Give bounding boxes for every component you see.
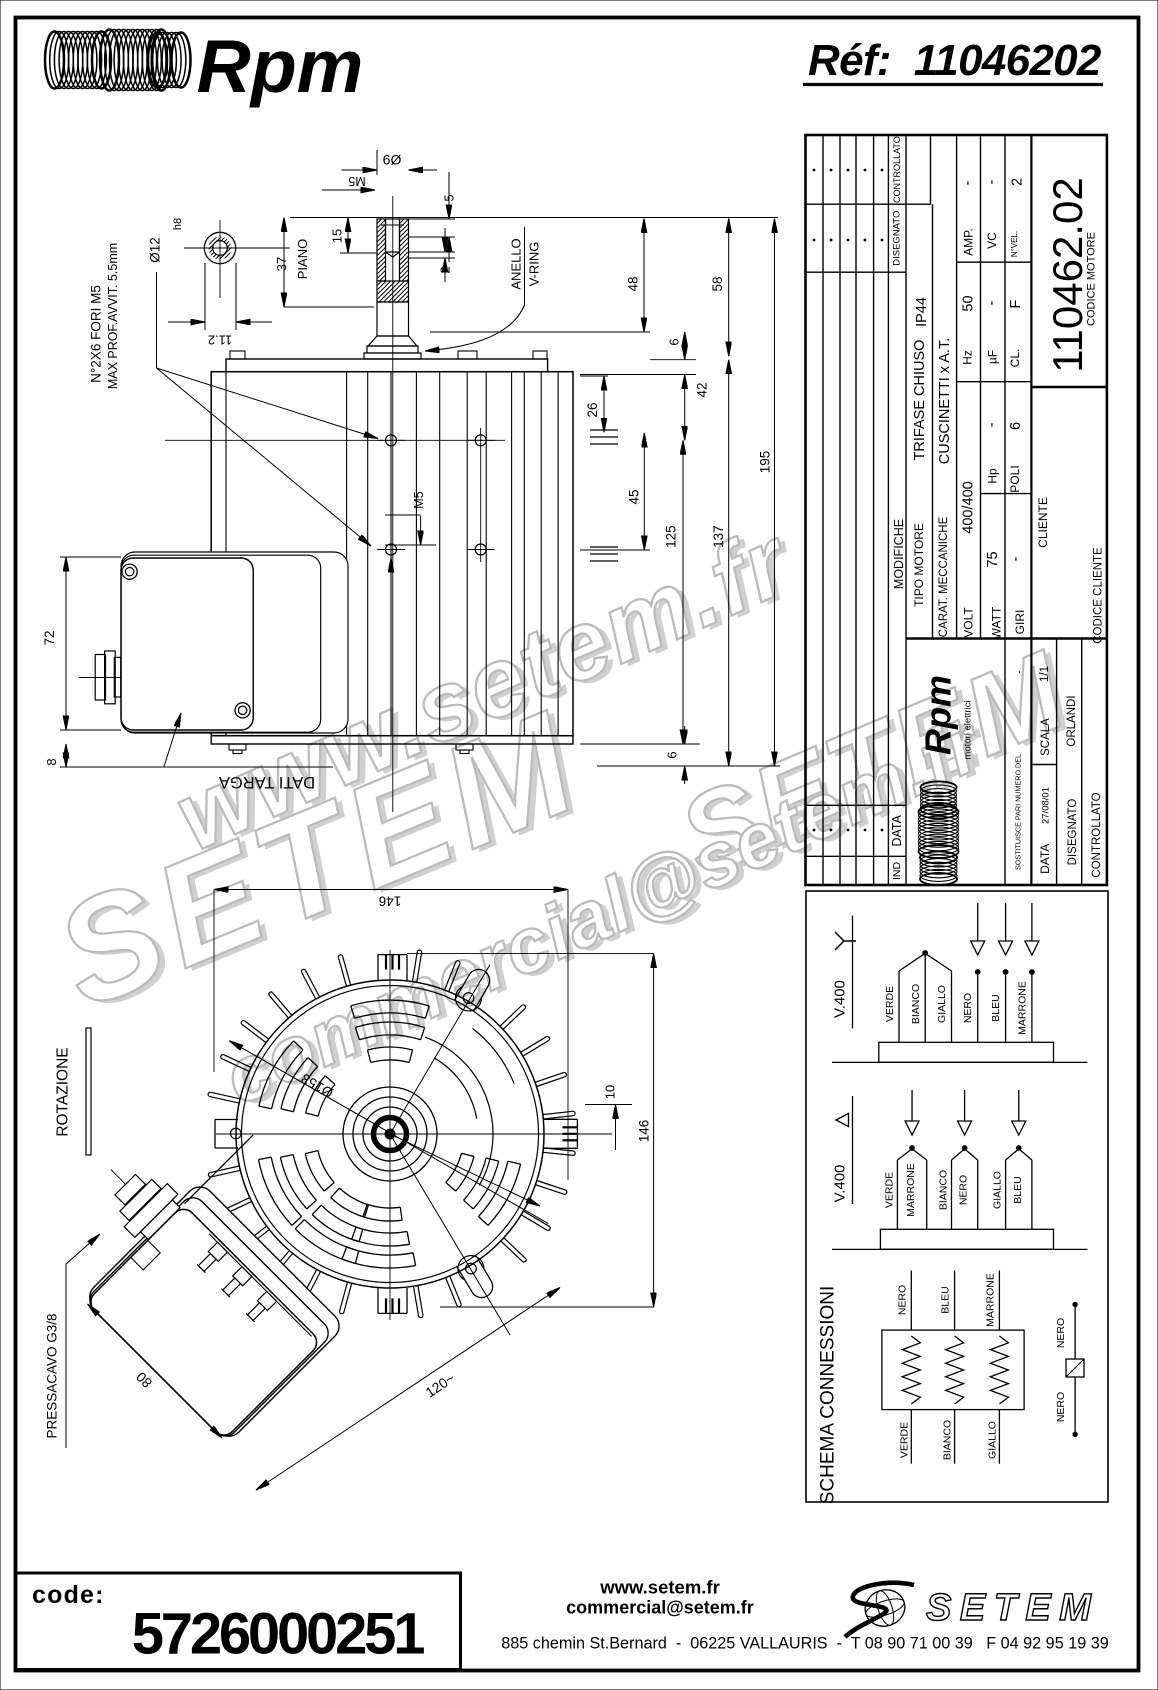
svg-text:75: 75: [985, 551, 1001, 567]
svg-text:N°VEL.: N°VEL.: [1010, 231, 1019, 257]
svg-text:NERO: NERO: [1055, 1318, 1067, 1348]
svg-text:48: 48: [626, 276, 641, 291]
svg-text:Réf: 11046202: Réf: 11046202: [808, 36, 1102, 85]
svg-text:58: 58: [710, 276, 725, 291]
svg-text:37: 37: [274, 257, 289, 271]
svg-text:M5: M5: [348, 174, 365, 188]
svg-text:µF: µF: [986, 350, 1000, 364]
svg-text:-: -: [984, 179, 1000, 184]
svg-text:DATA: DATA: [890, 814, 904, 846]
svg-text:-: -: [1015, 670, 1026, 673]
svg-text:6: 6: [1008, 422, 1024, 430]
svg-text:GIALLO: GIALLO: [992, 1171, 1004, 1209]
svg-text:MARRONE: MARRONE: [905, 1163, 917, 1217]
svg-text:SCHEMA CONNESSIONI: SCHEMA CONNESSIONI: [818, 1286, 839, 1505]
svg-text:V.400: V.400: [832, 1165, 849, 1203]
svg-text:Hz: Hz: [961, 350, 975, 365]
svg-text:15: 15: [330, 229, 345, 243]
svg-text:-: -: [984, 422, 1000, 427]
svg-text:TRIFASE CHIUSO: TRIFASE CHIUSO: [912, 340, 928, 461]
svg-text:TIPO MOTORE: TIPO MOTORE: [912, 523, 926, 607]
svg-text:CL.: CL.: [1008, 349, 1022, 368]
svg-text:commercial@setem.fr: commercial@setem.fr: [566, 1598, 754, 1618]
svg-text:NERO: NERO: [896, 1285, 908, 1315]
svg-text:BLEU: BLEU: [990, 994, 1002, 1021]
svg-text:45: 45: [627, 489, 642, 504]
svg-text:MARRONE: MARRONE: [984, 1273, 996, 1327]
svg-text:-: -: [1008, 556, 1024, 561]
svg-text:VC: VC: [985, 232, 999, 249]
svg-text:VERDE: VERDE: [898, 1422, 910, 1458]
svg-text:SETEM: SETEM: [926, 1587, 1099, 1629]
svg-text:885 chemin St.Bernard - 0622: 885 chemin St.Bernard - 06225 VALLAURIS …: [501, 1635, 1108, 1653]
svg-text:www.setem.fr: www.setem.fr: [599, 1577, 720, 1598]
svg-text:N°2X6 FORI M5: N°2X6 FORI M5: [89, 285, 104, 383]
svg-text:SCALA: SCALA: [1040, 718, 1052, 756]
svg-text:BLEU: BLEU: [1012, 1176, 1024, 1203]
svg-text:146: 146: [637, 1120, 652, 1143]
svg-text:DISEGNATO: DISEGNATO: [892, 211, 903, 266]
svg-text:V-RING: V-RING: [527, 242, 542, 287]
svg-text:-: -: [984, 300, 1000, 305]
svg-text:146: 146: [379, 894, 402, 909]
svg-text:IND: IND: [891, 862, 903, 881]
svg-text:195: 195: [758, 451, 773, 474]
svg-text:125: 125: [664, 525, 679, 548]
svg-text:DATA: DATA: [1038, 844, 1052, 874]
svg-text:MAX PROF.AVVIT. 5.5mm: MAX PROF.AVVIT. 5.5mm: [106, 243, 120, 389]
svg-text:CLIENTE: CLIENTE: [1036, 497, 1050, 548]
svg-text:MODIFICHE: MODIFICHE: [892, 519, 906, 589]
svg-text:72: 72: [42, 630, 57, 645]
svg-text:5: 5: [442, 194, 457, 201]
svg-text:8: 8: [44, 758, 59, 765]
svg-text:DATI TARGA: DATI TARGA: [219, 773, 315, 791]
svg-text:27/08/01: 27/08/01: [1041, 787, 1052, 824]
svg-text:V.400: V.400: [832, 980, 849, 1018]
svg-text:code:: code:: [32, 1581, 105, 1609]
svg-text:10: 10: [603, 1085, 618, 1099]
svg-text:ROTAZIONE: ROTAZIONE: [55, 1047, 72, 1136]
svg-text:1/1: 1/1: [1039, 666, 1051, 682]
svg-text:VERDE: VERDE: [884, 986, 896, 1022]
svg-text:CUSCINETTI x A.T.: CUSCINETTI x A.T.: [937, 338, 953, 465]
svg-text:6Ø: 6Ø: [383, 152, 402, 168]
svg-text:42: 42: [695, 382, 710, 397]
svg-text:F: F: [1008, 299, 1024, 308]
svg-text:-: -: [960, 180, 976, 185]
svg-text:WATT: WATT: [990, 606, 1004, 639]
svg-text:Rpm: Rpm: [918, 675, 959, 755]
svg-text:SOSTITUISCE PARI NUMERO DEL: SOSTITUISCE PARI NUMERO DEL: [1014, 754, 1023, 870]
svg-text:CODICE CLIENTE: CODICE CLIENTE: [1093, 547, 1105, 644]
svg-text:BIANCO: BIANCO: [910, 984, 922, 1024]
svg-text:MARRONE: MARRONE: [1016, 981, 1028, 1035]
svg-text:CARAT. MECCANICHE: CARAT. MECCANICHE: [938, 516, 950, 637]
svg-text:Ø12: Ø12: [148, 237, 163, 263]
svg-text:110462.02: 110462.02: [1044, 177, 1091, 372]
svg-text:Rpm: Rpm: [197, 24, 364, 108]
svg-text:CONTROLLATO: CONTROLLATO: [1091, 792, 1103, 877]
svg-text:GIALLO: GIALLO: [986, 1421, 998, 1459]
svg-text:50: 50: [960, 295, 976, 311]
svg-text:137: 137: [711, 525, 726, 548]
svg-text:2: 2: [1010, 178, 1026, 186]
svg-text:ORLANDI: ORLANDI: [1066, 695, 1078, 746]
svg-text:NERO: NERO: [962, 993, 974, 1023]
svg-text:6: 6: [667, 338, 682, 345]
svg-text:26: 26: [585, 402, 600, 417]
svg-text:VERDE: VERDE: [883, 1172, 895, 1208]
svg-text:BLEU: BLEU: [940, 1286, 952, 1313]
svg-text:5726000251: 5726000251: [132, 1602, 425, 1667]
svg-text:ANELLO: ANELLO: [509, 238, 524, 289]
svg-text:400/400: 400/400: [961, 481, 977, 533]
svg-text:GIRI: GIRI: [1013, 610, 1027, 635]
svg-text:DISEGNATO: DISEGNATO: [1067, 799, 1079, 866]
svg-text:VOLT: VOLT: [962, 607, 976, 638]
svg-text:NERO: NERO: [1055, 1392, 1067, 1422]
svg-text:BIANCO: BIANCO: [942, 1420, 954, 1460]
svg-text:Hp: Hp: [986, 468, 1000, 484]
svg-text:CONTROLLATO: CONTROLLATO: [892, 136, 902, 203]
svg-text:h8: h8: [172, 218, 184, 230]
svg-text:NERO: NERO: [958, 1175, 970, 1205]
svg-text:PRESSACAVO G3/8: PRESSACAVO G3/8: [45, 1313, 60, 1438]
svg-text:AMP.: AMP.: [962, 228, 976, 256]
svg-text:11.2: 11.2: [208, 333, 232, 348]
svg-text:GIALLO: GIALLO: [936, 985, 948, 1023]
svg-text:BIANCO: BIANCO: [938, 1170, 950, 1210]
svg-text:2: 2: [438, 266, 453, 273]
svg-text:PIANO: PIANO: [295, 239, 310, 279]
svg-text:M5: M5: [412, 491, 426, 508]
svg-text:POLI: POLI: [1008, 465, 1022, 492]
svg-text:6: 6: [665, 751, 680, 758]
svg-text:motori elettrici: motori elettrici: [963, 700, 974, 759]
svg-text:IP44: IP44: [914, 297, 930, 327]
